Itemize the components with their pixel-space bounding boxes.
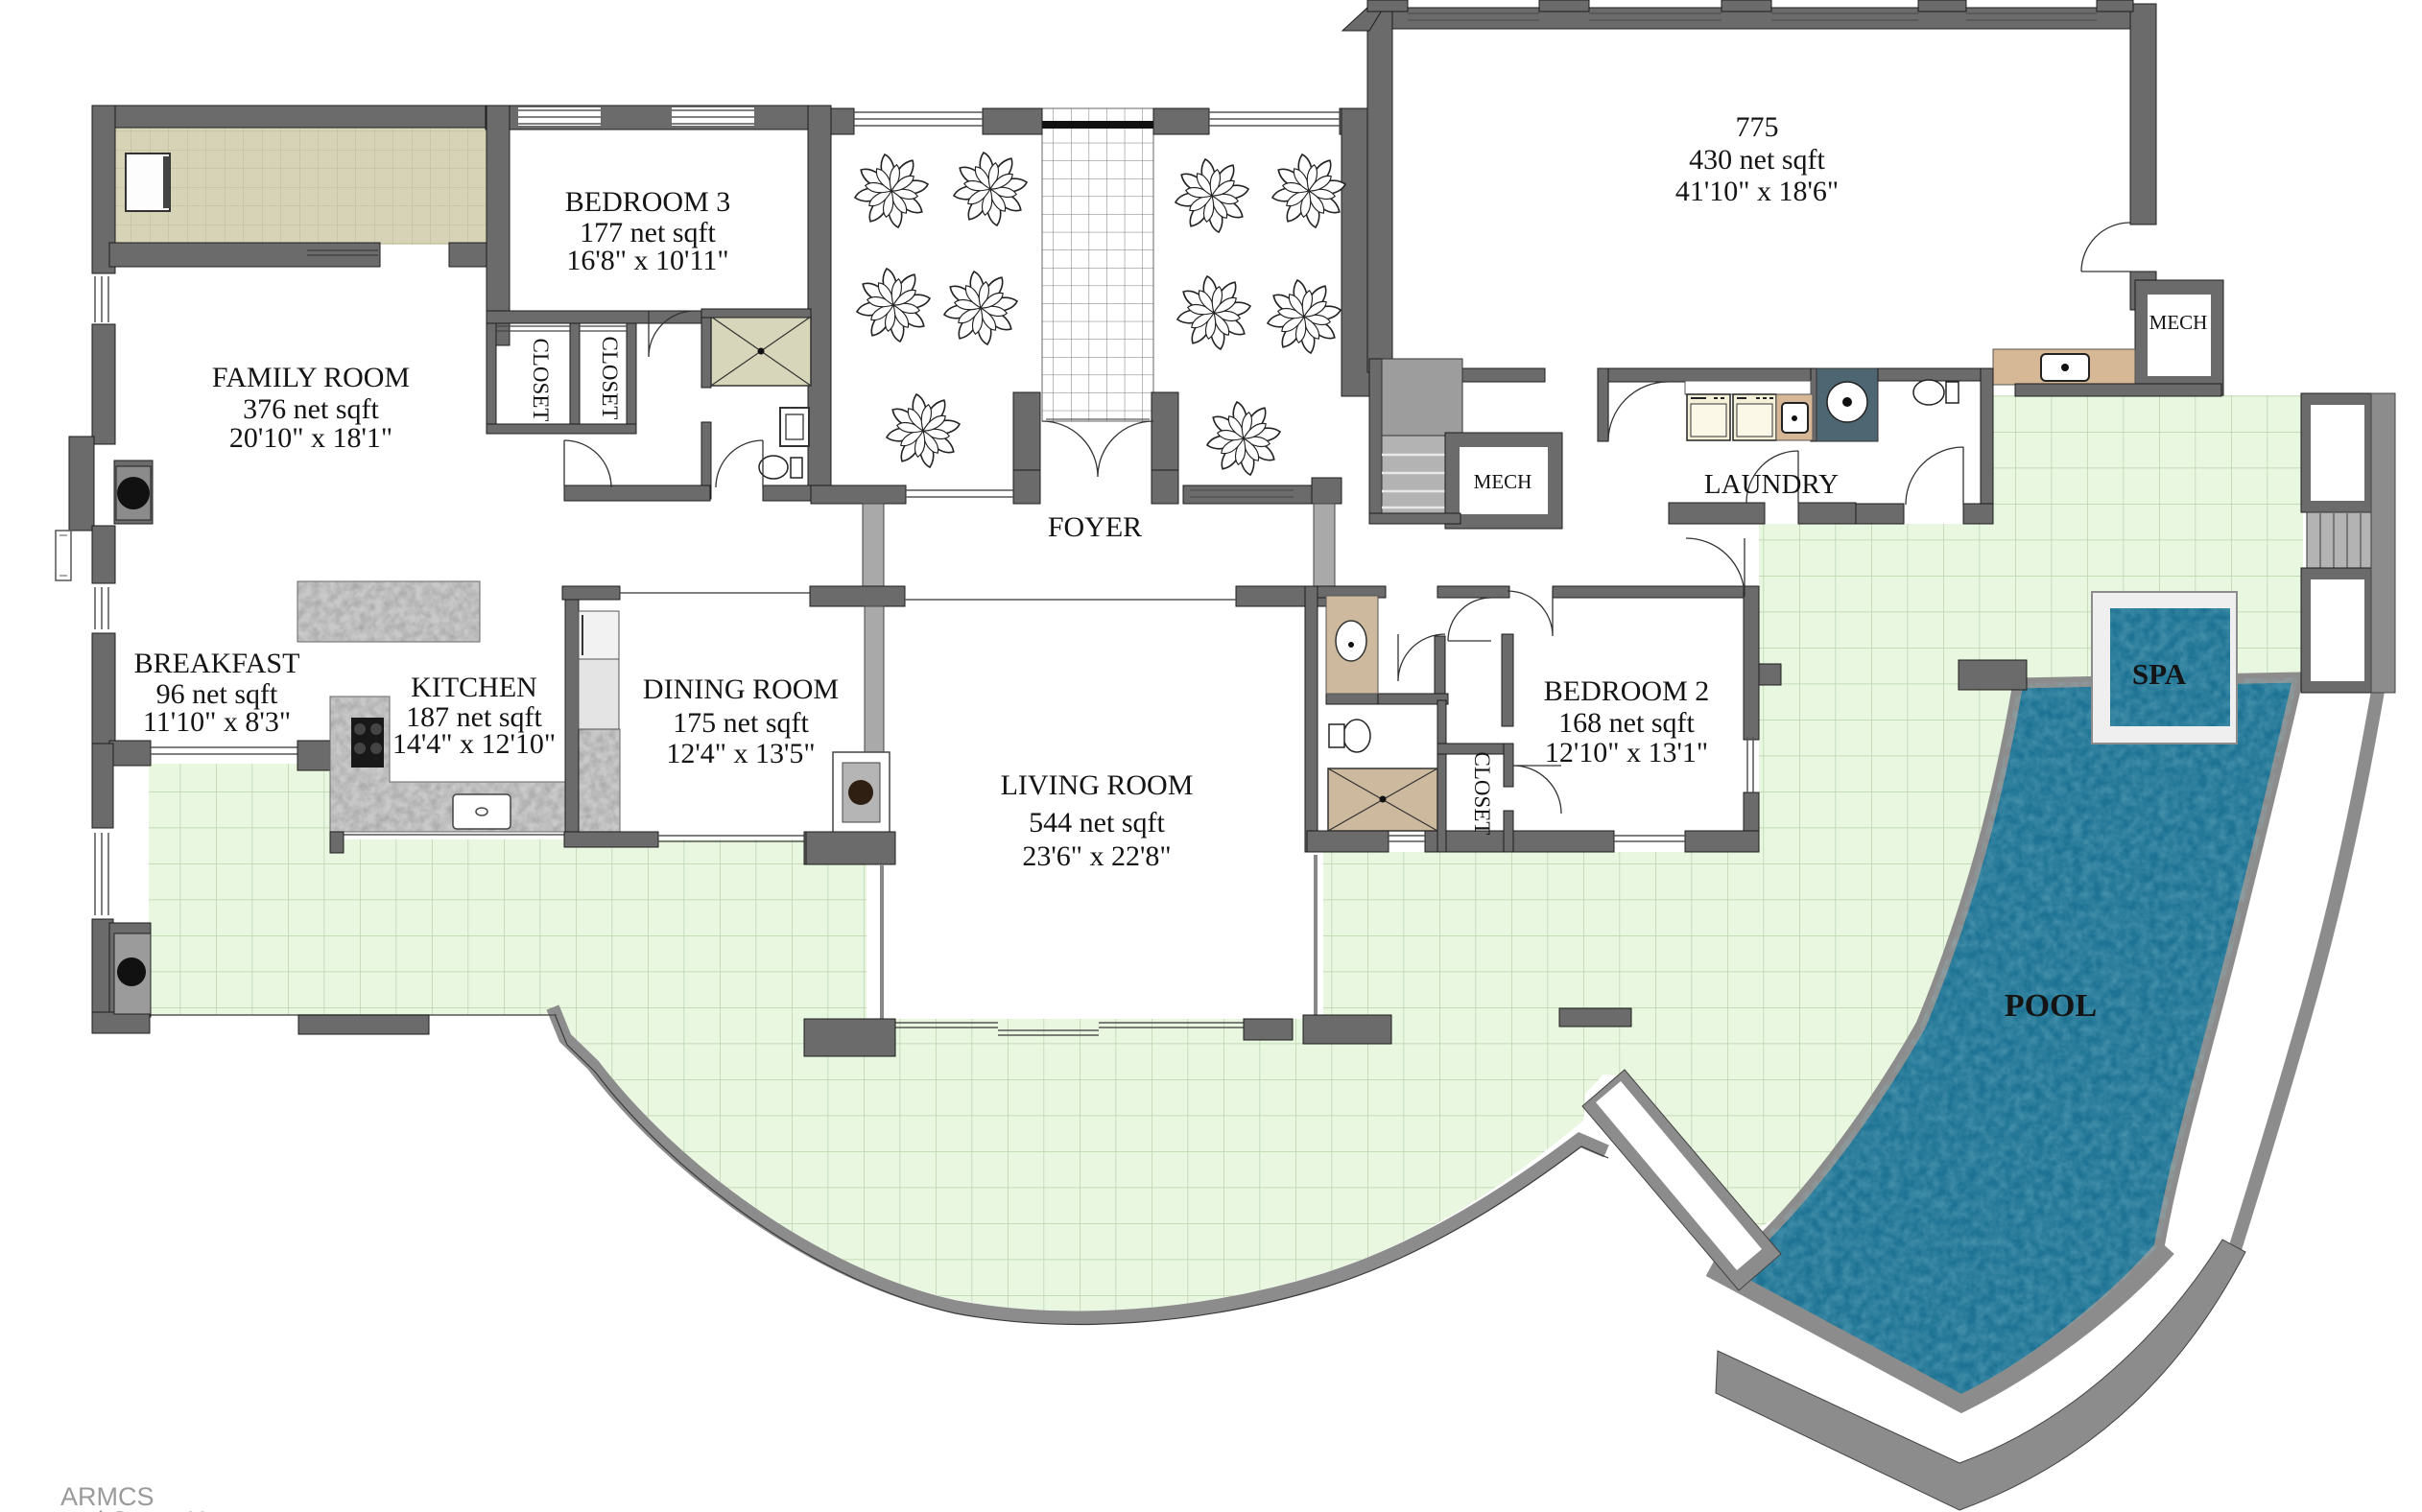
svg-text:BREAKFAST: BREAKFAST bbox=[134, 648, 300, 679]
svg-text:CLOSET: CLOSET bbox=[529, 339, 553, 422]
svg-text:MECH: MECH bbox=[2149, 311, 2208, 334]
svg-text:376 net sqft: 376 net sqft bbox=[243, 393, 379, 425]
svg-text:16'8" x 10'11": 16'8" x 10'11" bbox=[566, 245, 728, 276]
svg-text:BEDROOM 2: BEDROOM 2 bbox=[1544, 675, 1710, 707]
svg-text:14'4" x 12'10": 14'4" x 12'10" bbox=[392, 728, 556, 760]
svg-text:FAMILY ROOM: FAMILY ROOM bbox=[212, 362, 410, 393]
svg-text:CLOSET: CLOSET bbox=[1470, 752, 1494, 836]
svg-text:175 net sqft: 175 net sqft bbox=[673, 707, 809, 739]
svg-text:POOL: POOL bbox=[2005, 988, 2097, 1024]
svg-text:41'10" x 18'6": 41'10" x 18'6" bbox=[1675, 176, 1839, 207]
svg-text:23'6" x 22'8": 23'6" x 22'8" bbox=[1022, 840, 1171, 872]
svg-text:430 net sqft: 430 net sqft bbox=[1689, 144, 1825, 176]
svg-text:MECH: MECH bbox=[1474, 470, 1532, 493]
svg-text:544 net sqft: 544 net sqft bbox=[1029, 807, 1165, 839]
svg-text:LAUNDRY: LAUNDRY bbox=[1704, 469, 1839, 500]
svg-text:168 net sqft: 168 net sqft bbox=[1558, 707, 1695, 739]
svg-text:SPA: SPA bbox=[2132, 657, 2187, 691]
svg-text:11'10" x 8'3": 11'10" x 8'3" bbox=[143, 706, 291, 738]
svg-text:DINING ROOM: DINING ROOM bbox=[643, 673, 839, 705]
svg-text:12'4" x 13'5": 12'4" x 13'5" bbox=[666, 738, 815, 769]
svg-text:and Smart Home: and Smart Home bbox=[60, 1506, 256, 1512]
svg-text:775: 775 bbox=[1736, 111, 1779, 143]
svg-text:LIVING ROOM: LIVING ROOM bbox=[1001, 769, 1194, 801]
svg-text:BEDROOM 3: BEDROOM 3 bbox=[565, 186, 731, 218]
svg-text:12'10" x 13'1": 12'10" x 13'1" bbox=[1545, 737, 1708, 768]
svg-text:FOYER: FOYER bbox=[1048, 511, 1142, 543]
svg-text:KITCHEN: KITCHEN bbox=[411, 672, 537, 703]
svg-text:20'10" x 18'1": 20'10" x 18'1" bbox=[229, 422, 392, 454]
svg-text:CLOSET: CLOSET bbox=[598, 337, 622, 420]
